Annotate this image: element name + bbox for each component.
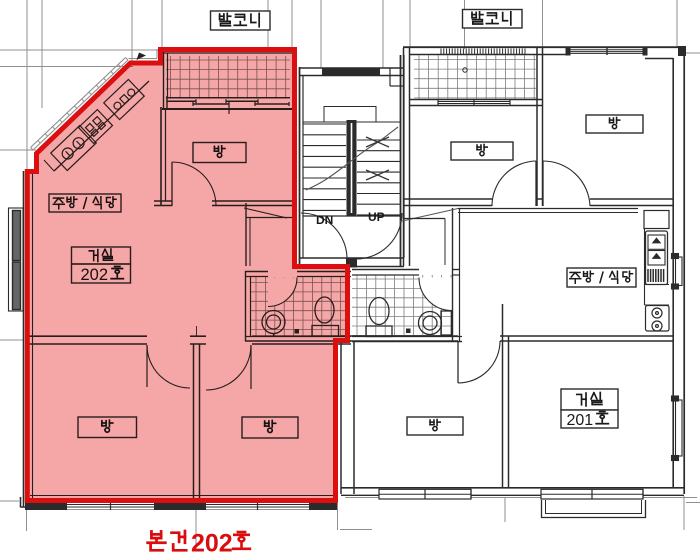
svg-text:202: 202: [191, 530, 233, 558]
svg-text:UP: UP: [368, 210, 385, 224]
svg-text:DN: DN: [316, 213, 333, 227]
svg-text:201: 201: [567, 412, 594, 429]
